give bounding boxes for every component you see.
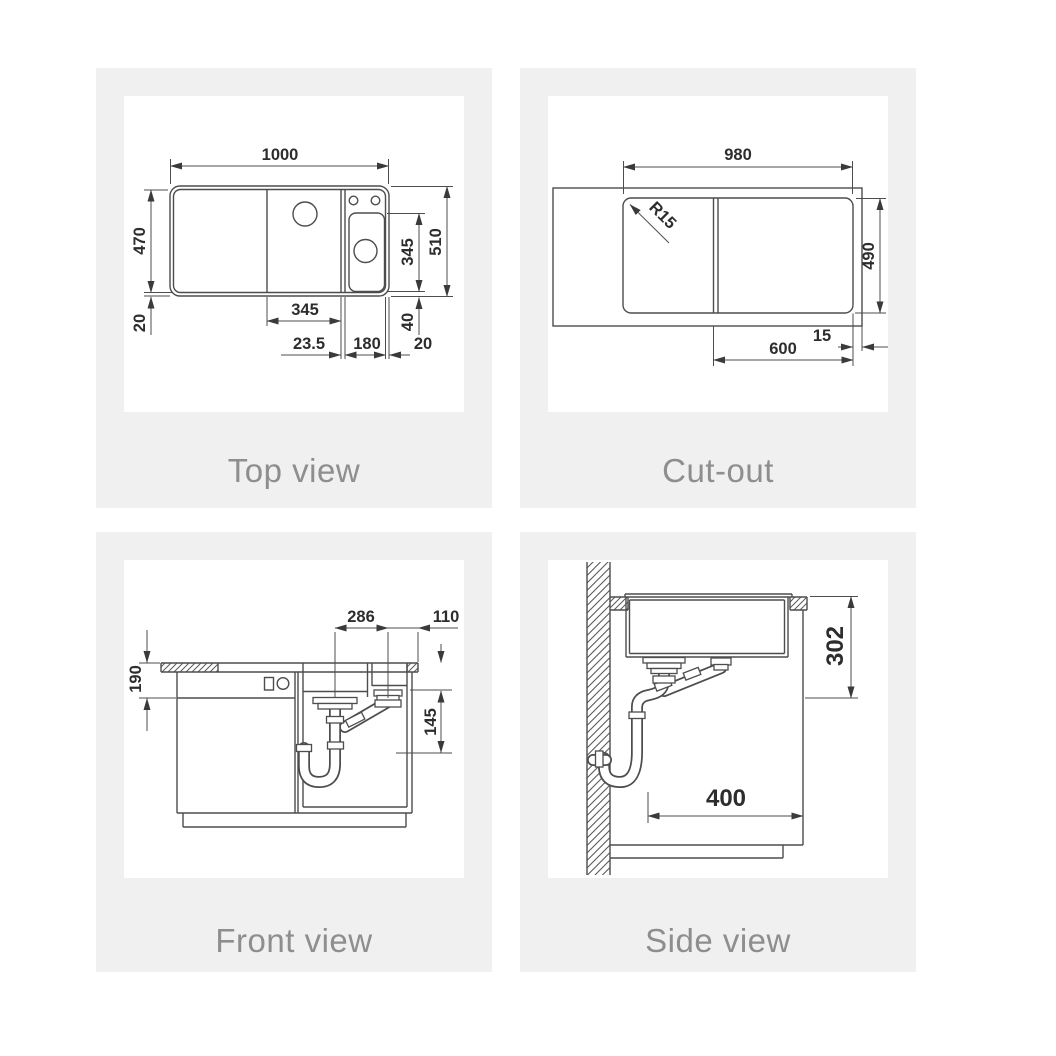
panel-cut-out: 980 R15 490 600 15 Cut-out [520,68,916,508]
dim-corner-radius: R15 [645,198,679,232]
dim-tray-width: 180 [353,335,381,353]
dim-bowl-section-width: 600 [769,340,797,358]
dim-tray-depth: 345 [399,238,417,266]
drain-hole-icon [354,240,377,263]
pipe-nut [328,742,344,749]
control-square-icon [265,678,274,691]
dim-apron-height: 190 [127,665,145,693]
front-view-drawing: 286 110 190 145 [124,560,464,878]
dim-bowl-depth: 470 [131,227,149,255]
cut-out-drawing: 980 R15 490 600 15 [548,96,888,412]
wall-hatch [587,562,610,875]
dimension-lines [624,161,889,366]
dim-cutout-width: 980 [724,146,752,164]
tap-hole-icon [349,196,358,205]
drain-flange [318,704,352,710]
pipe-nut [297,745,312,752]
counter-hatch [790,597,807,610]
side-view-drawing: 302 400 [548,560,888,878]
dim-drain-spacing: 286 [347,608,375,626]
drain-plumbing [297,690,403,782]
counter-hatch [407,663,418,672]
view-label-top: Top view [96,452,492,490]
front-view-sheet: 286 110 190 145 [124,560,464,878]
cabinet-outline [161,663,418,827]
cut-out-sheet: 980 R15 490 600 15 [548,96,888,412]
drain-flange [647,663,681,669]
dim-rim-bottom: 20 [131,314,149,332]
side-view-sheet: 302 400 [548,560,888,878]
view-label-front: Front view [96,922,492,960]
dim-wall-clearance: 400 [706,785,746,812]
pipe-nut [375,700,401,707]
drain-plumbing [593,658,731,783]
dim-overall-depth: 510 [427,228,445,256]
pipe-nut [629,712,645,719]
pipe-nut [327,717,344,724]
pipe-nut [714,665,728,671]
dim-main-bowl-width: 345 [291,301,319,319]
dim-cutout-depth: 490 [860,242,878,270]
dim-overall-width: 1000 [262,146,299,164]
tap-hole-icon [371,196,380,205]
cutout-outline [553,188,862,326]
counter-hatch [161,663,218,672]
panel-top-view: 1000 470 20 345 510 40 345 23.5 180 20 T… [96,68,492,508]
panel-side-view: 302 400 Side view [520,532,916,972]
control-knob-icon [277,678,289,690]
drain-flange [643,658,685,664]
drain-flange [651,669,677,674]
drain-flange [313,698,357,704]
dim-divider-width: 23.5 [293,335,325,353]
dim-install-depth: 302 [822,626,849,666]
sink-outline [170,186,389,296]
pipe-nut [596,751,604,767]
dim-tray-bottom-gap: 40 [399,313,417,331]
panel-front-view: 286 110 190 145 Front view [96,532,492,972]
top-view-sheet: 1000 470 20 345 510 40 345 23.5 180 20 [124,96,464,412]
dim-edge-gap: 15 [813,327,831,345]
dim-rim-right: 20 [414,335,432,353]
top-view-drawing: 1000 470 20 345 510 40 345 23.5 180 20 [124,96,464,412]
view-label-side: Side view [520,922,916,960]
dim-trap-clearance: 145 [422,708,440,736]
dim-drain-edge-offset: 110 [433,608,460,626]
pipe-nut [653,676,675,683]
view-label-cutout: Cut-out [520,452,916,490]
